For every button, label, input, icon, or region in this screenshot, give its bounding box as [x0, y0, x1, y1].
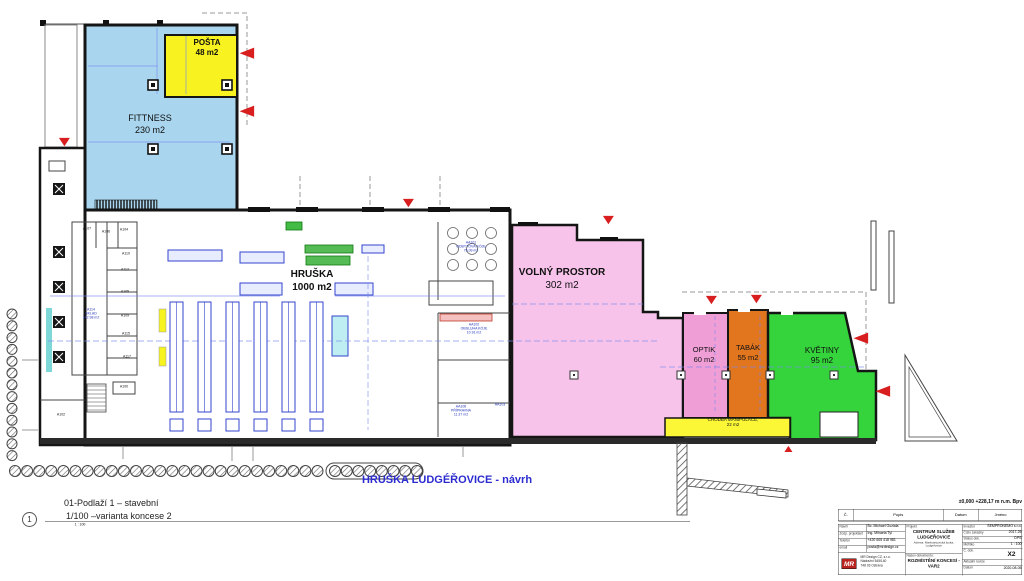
tb-email-value: posta@mrdesign.cz	[867, 546, 906, 550]
tb-zodp-label: Zodp. projektant	[839, 532, 867, 537]
tb-investor-value: SEMPRONEMO s.r.o.	[986, 525, 1022, 529]
room-label: A117	[123, 355, 131, 359]
room-label: A104	[120, 228, 128, 232]
aa102-label: AA102OBSLUHA KÓJE10.91 m2	[461, 323, 488, 335]
tb-zakazka-label: Číslo zakázky	[963, 531, 985, 536]
tb-navrh-value: Bc. Michael Guziala	[867, 525, 906, 529]
rev-col-datum: Datum	[944, 510, 979, 521]
tb-meritko-label: Měřítko	[963, 543, 976, 548]
tb-investor-label: Investor	[963, 525, 977, 530]
tb-navrh-label: Návrh	[839, 525, 867, 530]
zone-label-chodba: CHODBA MANIPULACE,22 m2	[708, 417, 759, 427]
tb-adresa: Adresa: Markvartovická louka, Ludgeřovic…	[906, 540, 963, 548]
tb-email-label: email	[839, 546, 867, 551]
tb-projekt-title: CENTRUM SLUŽEBLUDGEŘOVICE	[906, 529, 963, 540]
room-label: A106	[102, 230, 110, 234]
tb-status-label: Status dok.	[963, 537, 981, 542]
firm-address: MR Design CZ, s.r.o. Nádražní 545/140 74…	[861, 556, 891, 569]
rev-col-jmeno: Jméno	[979, 510, 1023, 521]
sklad-label: A114SKLAD142.98 m2	[83, 308, 100, 320]
tb-cdok-value: X2	[1008, 549, 1023, 558]
room-label: A115	[122, 332, 130, 336]
tb-zakazka-value: 2017-25	[1008, 531, 1023, 535]
rev-col-popis: Popis	[854, 510, 944, 521]
tb-tel-label: Telefon	[839, 539, 867, 544]
mr-design-logo: MR	[842, 559, 857, 570]
tb-revize-label: Aktuální revize	[963, 560, 1023, 565]
tb-zodp-value: Ing. Mihaela Tyl	[867, 532, 906, 536]
micro-text-layer: 1 : 100 A107 A106 A104 A110 A112 A105 A1…	[0, 0, 1024, 581]
tb-datum-value: 2020-08-05	[1003, 566, 1023, 571]
aa103-label: AA103	[495, 403, 506, 407]
room-label: A105	[121, 290, 129, 294]
elevation-note: ±0,000 +228,17 m n.m. Bpv	[959, 499, 1022, 505]
room-label: A110	[122, 252, 130, 256]
room-label: A109	[121, 314, 129, 318]
aa101-label: AA101ODBYTOVÁ KÓJE76.09 m2	[456, 241, 486, 253]
title-block: Návrh Bc. Michael Guziala Zodp. projekta…	[838, 524, 1022, 575]
room-label: A107	[83, 227, 91, 231]
room-label: A100	[120, 385, 128, 389]
tb-tel-value: +420 605 418 981	[867, 539, 906, 543]
tb-meritko-value: 1 : 100	[1010, 543, 1023, 547]
room-label: A102	[57, 413, 65, 417]
revision-table: Č. Popis Datum Jméno	[838, 509, 1022, 521]
floor-plan-canvas: FITTNESS230 m2 POŠTA48 m2 HRUŠKA1000 m2 …	[0, 0, 1024, 581]
tb-datum-label: Datum	[963, 566, 975, 571]
tb-cdok-label: Č. dok.	[963, 549, 975, 554]
tb-status-value: DPS	[1013, 537, 1022, 541]
tb-document-title: ROZMÍSTĚNÍ KONCESÍ -VAR2	[906, 558, 963, 569]
aa106-label: AA106PŘÍPRAVNA11.37 m2	[451, 405, 471, 417]
rev-col-c: Č.	[839, 510, 854, 521]
footer-scale-note: 1 : 100	[75, 523, 86, 527]
room-label: A112	[121, 268, 129, 272]
